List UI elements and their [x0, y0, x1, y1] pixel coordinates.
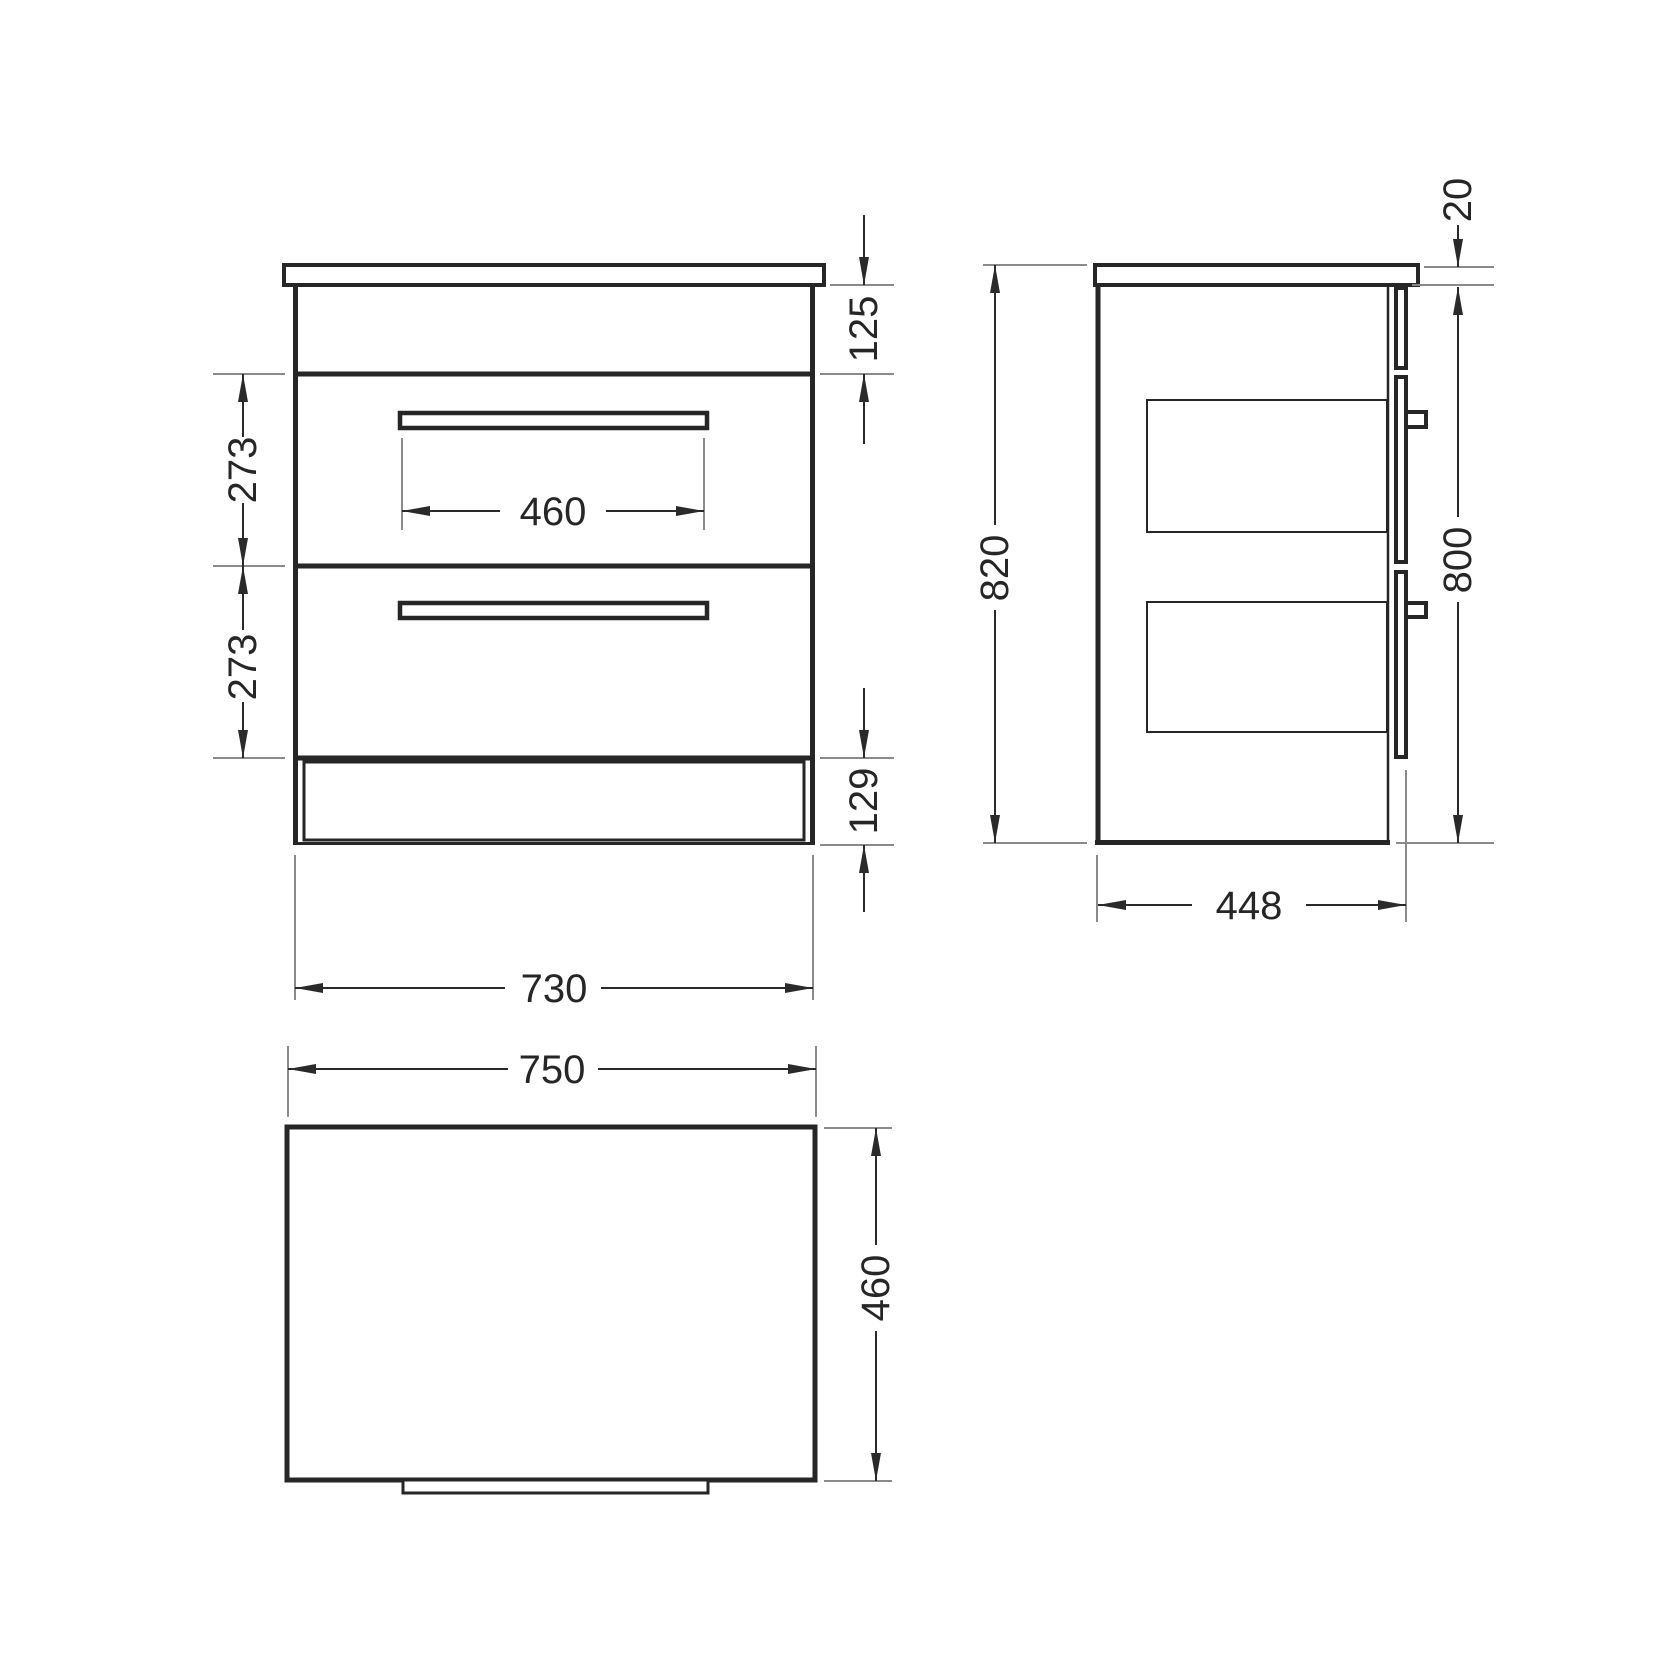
dim-side-worktop-thickness: 20 — [1412, 178, 1494, 285]
side-drawer2-box — [1147, 602, 1387, 732]
side-drawer2-handle — [1406, 603, 1426, 617]
side-drawer1-box — [1147, 400, 1387, 532]
dim-label-front-plinth: 129 — [842, 768, 886, 835]
dim-front-drawer2: 273 — [213, 566, 285, 758]
dim-top-width: 750 — [288, 1046, 816, 1117]
dim-front-drawer1: 273 — [213, 374, 285, 566]
dim-label-front-width: 730 — [521, 967, 588, 1011]
dim-side-depth: 448 — [1097, 770, 1406, 928]
dim-label-side-overall-height: 820 — [973, 535, 1017, 602]
front-drawer2-handle — [400, 603, 707, 618]
front-view: 460 125 273 273 — [213, 215, 894, 1011]
side-worktop — [1095, 265, 1418, 285]
front-drawer1-handle — [400, 413, 707, 428]
dim-front-plinth: 129 — [820, 688, 894, 912]
side-drawer1-handle — [1406, 412, 1426, 427]
dim-top-depth: 460 — [824, 1128, 898, 1481]
dim-label-side-depth: 448 — [1216, 884, 1283, 928]
top-worktop-outline — [287, 1127, 815, 1480]
drawing-canvas: 460 125 273 273 — [0, 0, 1676, 1676]
dim-label-top-depth: 460 — [854, 1255, 898, 1322]
side-view: 820 20 800 448 — [973, 178, 1494, 928]
dim-side-overall-height: 820 — [973, 265, 1087, 843]
dim-front-top-rail: 125 — [820, 215, 894, 444]
side-drawer1-front — [1396, 377, 1406, 562]
dim-front-width: 730 — [295, 855, 813, 1011]
dim-label-front-drawer2: 273 — [221, 634, 265, 701]
dim-side-front-panel-height: 800 — [1396, 287, 1494, 843]
dim-label-front-handle-width: 460 — [520, 490, 587, 534]
front-plinth-panel — [304, 762, 804, 840]
dim-label-front-top-rail: 125 — [842, 296, 886, 363]
side-top-rail-front — [1396, 288, 1406, 368]
side-drawer2-front — [1396, 572, 1406, 757]
dim-label-side-worktop-thickness: 20 — [1436, 178, 1480, 223]
front-worktop — [284, 265, 824, 285]
dim-label-front-drawer1: 273 — [221, 437, 265, 504]
dim-label-side-front-panel-height: 800 — [1436, 527, 1480, 594]
top-view: 750 460 — [287, 1046, 898, 1493]
dim-label-top-width: 750 — [519, 1048, 586, 1092]
dim-front-handle-width: 460 — [402, 438, 704, 534]
top-handle-protrusion — [403, 1480, 708, 1493]
technical-drawing: 460 125 273 273 — [0, 0, 1676, 1676]
